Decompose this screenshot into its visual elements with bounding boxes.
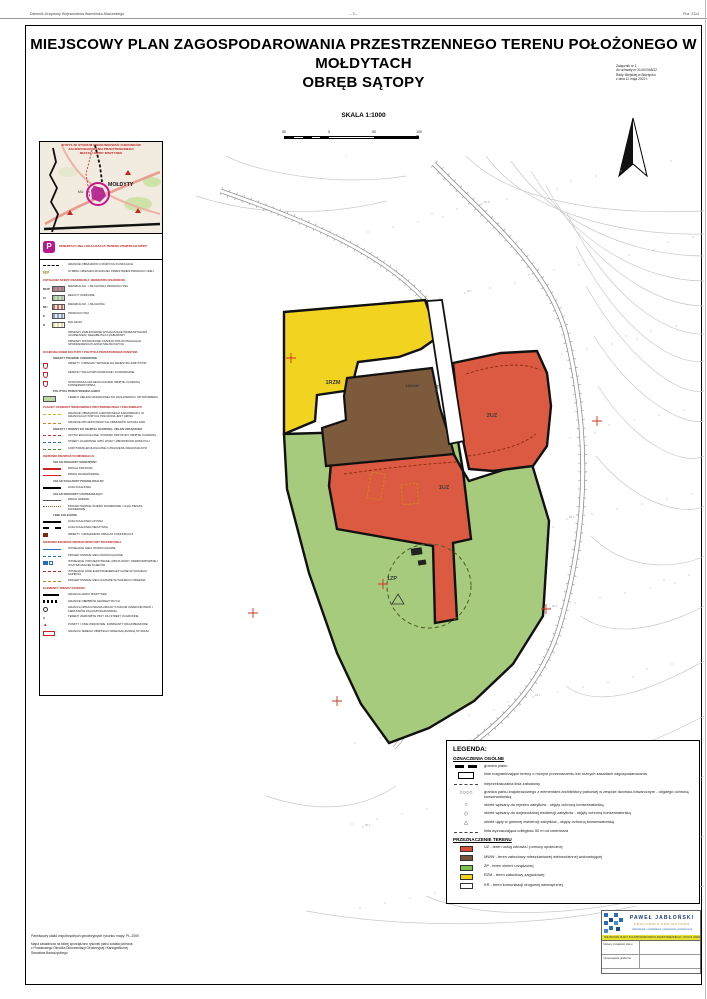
legend-row: ▲PUNKTY I OSIE WIDOKOWE, DOMINANTY KRAJO… <box>43 623 159 628</box>
legend-row: DROGA KRAJOWA <box>43 467 159 471</box>
geodetic-cross <box>332 696 342 706</box>
legend-row: ZIRELIKTY PARKOWE <box>43 294 159 301</box>
legend-general-label: obiekt ujęty w gminnej ewidencji zabytkó… <box>484 820 614 825</box>
legend-dest-swatch <box>453 855 479 862</box>
legend-symbol: MU <box>43 303 65 310</box>
legend-row: GRANICE OBSZARÓW O RÓŻNYCH FUNKCJACH <box>43 263 159 267</box>
legend-row: OBIEKTY I OBSZARY WPISANE DO REJESTRU ZA… <box>43 362 159 369</box>
legend-symbol <box>43 381 65 388</box>
inset-place-label: MOŁDYTY <box>108 182 133 188</box>
legend-row-label: PUNKTY I OSIE WIDOKOWE, DOMINANTY KRAJOB… <box>68 623 148 626</box>
zone-label-2uz: 2UZ <box>487 413 498 419</box>
legend-subsection-header: OBIEKTY I TERENY DO OBJĘCIA OCHRONĄ: ZIE… <box>53 428 159 431</box>
legend-symbol <box>43 340 65 344</box>
legend-general-symbol <box>453 764 479 769</box>
legend-general-row: △obiekt ujęty w gminnej ewidencji zabytk… <box>453 820 693 826</box>
legend-symbol: MU/P <box>43 285 65 292</box>
title-line-2: OBRĘB SĄTOPY <box>26 74 701 93</box>
legend-row: GRANICE OBRĘBÓW GEODEZYJNYCH <box>43 600 159 604</box>
legend-row-label: KORYTARZE EKOLOGICZNE O ZNACZENIU REGION… <box>68 447 147 450</box>
scale-bar-segments <box>284 136 419 139</box>
designer-contact: urbanistyka • architektura • planowanie … <box>626 928 698 931</box>
designer-name: PAWEŁ JABŁOŃSKI <box>626 915 698 921</box>
legend-dest-title: PRZEZNACZENIE TERENU <box>453 837 693 842</box>
legend-row-label: DROGI GMINNE <box>68 498 89 501</box>
legend-general-row: ○○○○granica parku krajobrazowego z eleme… <box>453 790 693 800</box>
legend-row-label: GRANICE OBRĘBÓW GEODEZYJNYCH <box>68 600 120 603</box>
journal-name: Dziennik Urzędowy Województwa Warmińsko-… <box>30 12 124 16</box>
legend-symbol <box>43 331 65 335</box>
legend-dest-row: KR - teren komunikacji drogowej wewnętrz… <box>453 883 693 890</box>
legend-row: ISTNIEJĄCE LINIE ELEKTROENERGETYCZNE WYS… <box>43 570 159 577</box>
legend-symbol: ⌀ <box>43 615 65 620</box>
legend-row-label: PROJEKTOWANE SIECI WODOCIĄGOWE <box>68 554 123 557</box>
legend-general-row: linia wyznaczająca odległość 50 m od cme… <box>453 829 693 834</box>
legend-symbol <box>43 533 65 538</box>
legend-symbol <box>43 526 65 530</box>
legend-row: DROGI WOJEWÓDZKIE <box>43 473 159 477</box>
svg-text:97.7: 97.7 <box>467 289 473 293</box>
legend-dest-row: RZM - teren zabudowy zagrodowej <box>453 873 693 880</box>
legend-general-label: linie rozgraniczające tereny o różnym pr… <box>484 772 647 777</box>
legend-general-row: ○obiekt wpisany do rejestru zabytków - o… <box>453 803 693 809</box>
legend-symbol <box>43 467 65 471</box>
legend-dest-label: KR - teren komunikacji drogowej wewnętrz… <box>484 883 563 888</box>
legend-row-label: ISTNIEJĄCE I PROJEKTOWANE UJĘCIA WODY, P… <box>68 560 159 567</box>
legend-general-row: nieprzekraczalna linia zabudowy <box>453 782 693 787</box>
legend-row: STANOWISKA ARCHEOLOGICZNE OBJĘTE OCHRONĄ… <box>43 381 159 388</box>
base-map-note: Mapa zasadnicza na której sporządzono ry… <box>31 942 271 955</box>
geodetic-cross <box>248 608 258 618</box>
legend-section-header: ELEMENTY ZMIANY STUDIUM <box>43 587 159 590</box>
legend-row: OBSZARY ZABUDOWANE WYMAGAJĄCE PRZEKSZTAŁ… <box>43 331 159 338</box>
legend-dest-row: UZ - teren usług zdrowia i pomocy społec… <box>453 845 693 852</box>
legend-subsection-header: UKŁAD DROGOWY UZUPEŁNIAJĄCY <box>53 493 159 496</box>
legend-row: UŻYTKI EKOLOGICZNE I POMNIKI PRZYRODY OB… <box>43 434 159 438</box>
legend-row: PROJEKTOWANE ŚCIEŻKI ROWEROWE I CIĄGI PI… <box>43 505 159 512</box>
svg-text:95.1: 95.1 <box>365 823 371 827</box>
legend-subsection-header: LINIE KOLEJOWE <box>53 514 159 517</box>
legend-symbol <box>43 498 65 502</box>
legend-dest-swatch <box>453 873 479 880</box>
geodetic-cross <box>592 416 602 426</box>
legend-symbol <box>43 560 65 565</box>
legend-row-label: LINIA KOLEJOWA CZYNNA <box>68 520 103 523</box>
legend-general-label: linia wyznaczająca odległość 50 m od cme… <box>484 829 568 834</box>
legend-row: GRANICE OBSZARÓW CHRONIONEGO KRAJOBRAZU,… <box>43 412 159 419</box>
legend-symbol <box>43 263 65 267</box>
legend-general-row: ◇obiekt wpisany do wojewódzkiej ewidencj… <box>453 811 693 817</box>
coordinate-system-note: Państwowy układ współrzędnych geodezyjny… <box>31 934 271 938</box>
legend-row-label: GRANICE PROJEKTOWANYCH OBSZARÓW NATURA 2… <box>68 421 145 424</box>
legend-symbol: ZI <box>43 294 65 301</box>
legend-subsection-header: UKŁAD DROGOWY NADRZĘDNY <box>53 461 159 464</box>
svg-text:93.1: 93.1 <box>535 693 541 697</box>
legend-subsection-header: OBIEKTY PRAWNIE CHRONIONE <box>53 357 159 360</box>
legend-row-label: GRANICE OBSZARÓW O RÓŻNYCH FUNKCJACH <box>68 263 133 266</box>
svg-text:99.3: 99.3 <box>569 515 575 519</box>
legend-dest-row: MWW - teren zabudowy mieszkaniowej wielo… <box>453 855 693 862</box>
stamp-row-label: Opracowanie graficzne <box>602 955 640 968</box>
legend-row-label: DROGI WOJEWÓDZKIE <box>68 473 99 476</box>
plan-sheet-page: Dziennik Urzędowy Województwa Warmińsko-… <box>0 0 707 999</box>
legend-row: DROGI GMINNE <box>43 498 159 502</box>
legend-general-symbol: ○○○○ <box>453 790 479 796</box>
legend-general-symbol <box>453 772 479 780</box>
legend-general-symbol <box>453 829 479 834</box>
page-number: – 3 – <box>350 12 358 16</box>
legend-row: ISTNIEJĄCE SIECI WODOCIĄGOWE <box>43 547 159 551</box>
resolution-annotation: Załącznik nr 1do uchwały nr XLVIII/348/2… <box>616 64 696 82</box>
zone-label-1mww: 1MWW <box>405 383 418 388</box>
legend-symbol <box>43 473 65 477</box>
legend-row-label: ISTNIEJĄCE SIECI WODOCIĄGOWE <box>68 547 116 550</box>
legend-row-label: ROLNICZA <box>68 321 82 324</box>
legend-symbol <box>43 396 65 403</box>
legend-symbol <box>43 606 65 612</box>
page-title: MIEJSCOWY PLAN ZAGOSPODAROWANIA PRZESTRZ… <box>26 36 701 92</box>
legend-row-label: STREFY OCHRONNE UJĘĆ WODY I ZBIORNIKÓW W… <box>68 440 149 443</box>
legend-symbol <box>43 600 65 604</box>
legend-row: GRANICA GMINY BISZTYNEK <box>43 593 159 597</box>
zone-polygons <box>284 300 551 743</box>
designer-stamp: PAWEŁ JABŁOŃSKI PRACOWNIA PROJEKTOWA urb… <box>601 910 701 974</box>
legend-subsection-header: UKŁAD KOLEJOWY PONADLOKALNY <box>53 480 159 483</box>
scale-label: SKALA 1:1000 <box>26 112 701 119</box>
inset-map-title: WYRYS ZE STUDIUM UWARUNKOWAŃ I KIERUNKÓW… <box>40 144 162 156</box>
legend-row: OBIEKTY I URZĄDZENIA OBSŁUGI KOMUNIKACJI <box>43 533 159 538</box>
legend-symbol <box>43 579 65 583</box>
legend-row-label: OBIEKTY I URZĄDZENIA OBSŁUGI KOMUNIKACJI <box>68 533 133 536</box>
stamp-table: Główny projektant planuOpracowanie grafi… <box>602 940 700 969</box>
scale-tick-labels: 50050100 m <box>284 130 419 135</box>
legend-row: GRANICA OPRACOWANIA ZMIANY STUDIUM UWARU… <box>43 606 159 613</box>
legend-dest-swatch <box>453 845 479 852</box>
legend-section-header: ZASADY OCHRONY ŚRODOWISKA PRZYRODNICZEGO… <box>43 406 159 409</box>
legend-general-rows: granica planulinie rozgraniczające teren… <box>453 764 693 834</box>
study-inset-map: WYRYS ZE STUDIUM UWARUNKOWAŃ I KIERUNKÓW… <box>40 142 162 234</box>
legend-row: PROJEKTOWANE SIECI WODOCIĄGOWE <box>43 554 159 558</box>
legend-row-label: LINIA KOLEJOWA NIECZYNNA <box>68 526 108 529</box>
legend-row: PPRODUKCYJNA <box>43 312 159 319</box>
legend-symbol <box>43 554 65 558</box>
annotation-line: z dnia 11 maja 2022 r. <box>616 77 696 81</box>
inset-place-label-2: MU <box>78 190 83 194</box>
legend-row-label: ISTNIEJĄCE LINIE ELEKTROENERGETYCZNE WYS… <box>68 570 159 577</box>
legend-row-label: STANOWISKA ARCHEOLOGICZNE OBJĘTE OCHRONĄ… <box>68 381 159 388</box>
legend-row: GRANICE PROJEKTOWANYCH OBSZARÓW NATURA 2… <box>43 421 159 425</box>
legend-row-label: TERENY ZAMKNIĘTE PKP I ICH STREFY OCHRON… <box>68 615 138 618</box>
legend-row: MUMIESZKALNO - USŁUGOWA <box>43 303 159 310</box>
legend-dest-label: ZP - teren zieleni urządzonej <box>484 864 533 869</box>
base-map-note-line: Starostwa Bartoszyckiego <box>31 951 271 955</box>
legend-dest-label: RZM - teren zabudowy zagrodowej <box>484 873 544 878</box>
legend-symbol <box>43 570 65 574</box>
legend-symbol <box>43 412 65 416</box>
scale-tick: 0 <box>328 130 330 134</box>
legend-general-label: granica planu <box>484 764 507 769</box>
zone-2uz <box>453 351 551 471</box>
legend-symbol: R <box>43 321 65 328</box>
stamp-logo-icon <box>604 913 624 933</box>
header-rule <box>0 18 707 19</box>
legend-row: GRANICA TERENU OBJĘTEGO NINIEJSZĄ ZMIANĄ… <box>43 630 159 636</box>
legend-row-label: PRODUKCYJNA <box>68 312 89 315</box>
legend-row: RPSYMBOL OBSZARU ROLNICZEJ PRZESTRZENI P… <box>43 270 159 276</box>
legend-section-header: KIERUNKI ROZWOJU KOMUNIKACJI <box>43 455 159 458</box>
legend-row: LINIA KOLEJOWA CZYNNA <box>43 520 159 524</box>
legend-row-label: DROGA KRAJOWA <box>68 467 93 470</box>
map-sheet-frame: MIEJSCOWY PLAN ZAGOSPODAROWANIA PRZESTRZ… <box>25 25 702 985</box>
legend-general-title: OZNACZENIA OGÓLNE <box>453 756 693 761</box>
legend-row: LINIA KOLEJOWA <box>43 486 159 490</box>
study-legend-rows: GRANICE OBSZARÓW O RÓŻNYCH FUNKCJACHRPSY… <box>40 260 162 636</box>
legend-row-label: OBSZARY ZABUDOWANE WYMAGAJĄCE PRZEKSZTAŁ… <box>68 331 159 338</box>
legend-general-label: obiekt wpisany do wojewódzkiej ewidencji… <box>484 811 631 816</box>
legend-general-label: nieprzekraczalna linia zabudowy <box>484 782 540 787</box>
orientation-label: ORIENTACYJNA LOKALIZACJA TERENU OBJĘTEGO… <box>59 244 147 248</box>
legend-row: KORYTARZE EKOLOGICZNE O ZNACZENIU REGION… <box>43 447 159 451</box>
legend-section-header: USTALENIA SFERY OSADNICZEJ: JEDNOSTKI OS… <box>43 279 159 282</box>
legend-row-label: ZESPOŁY PAŁACOWO-PARKOWE I FOLWARCZNE <box>68 371 134 374</box>
legend-general-label: granica parku krajobrazowego z elementam… <box>484 790 693 800</box>
legend-symbol <box>43 362 65 369</box>
scale-tick: 50 <box>372 130 376 134</box>
legend-general-symbol: △ <box>453 820 479 826</box>
mpzp-location-icon: P <box>43 241 55 253</box>
legend-row-label: TERENY ZIELENI URZĄDZONEJ DO ZACHOWANIA … <box>68 396 158 399</box>
legend-row-label: PROJEKTOWANE ŚCIEŻKI ROWEROWE I CIĄGI PI… <box>68 505 159 512</box>
zone-label-1kr: 1KR <box>433 384 440 393</box>
legend-title: LEGENDA: <box>453 746 693 753</box>
legend-row-label: LINIA KOLEJOWA <box>68 486 91 489</box>
footnotes: Państwowy układ współrzędnych geodezyjny… <box>31 934 271 955</box>
legend-general-symbol <box>453 782 479 787</box>
legend-symbol: ▲ <box>43 623 65 628</box>
legend-symbol <box>43 520 65 524</box>
legend-row: OBSZARY ROZWOJOWE OSADNICTWA WYMAGAJĄCE … <box>43 340 159 347</box>
legend-general-row: granica planu <box>453 764 693 769</box>
legend-dest-label: MWW - teren zabudowy mieszkaniowej wielo… <box>484 855 602 860</box>
legend-row-label: UŻYTKI EKOLOGICZNE I POMNIKI PRZYRODY OB… <box>68 434 156 437</box>
legend-row-label: GRANICA OPRACOWANIA ZMIANY STUDIUM UWARU… <box>68 606 159 613</box>
stamp-table-row: Opracowanie graficzne <box>602 955 700 969</box>
inset-map-graphic <box>40 142 162 234</box>
legend-row: RROLNICZA <box>43 321 159 328</box>
legend-row-label: MIESZKALNO - USŁUGOWA <box>68 303 105 306</box>
scale-bar: 50050100 m <box>284 130 419 142</box>
legend-row-label: OBIEKTY I OBSZARY WPISANE DO REJESTRU ZA… <box>68 362 146 365</box>
orientation-row: P ORIENTACYJNA LOKALIZACJA TERENU OBJĘTE… <box>40 234 162 260</box>
legend-row-label: GRANICA TERENU OBJĘTEGO NINIEJSZĄ ZMIANĄ… <box>68 630 149 633</box>
designer-subtitle: PRACOWNIA PROJEKTOWA <box>626 922 698 926</box>
zone-label-1rzm: 1RZM <box>326 380 341 386</box>
legend-general-symbol: ◇ <box>453 811 479 817</box>
stamp-row-label: Główny projektant planu <box>602 941 640 954</box>
legend-row: TERENY ZIELENI URZĄDZONEJ DO ZACHOWANIA … <box>43 396 159 403</box>
legend-row: PROJEKTOWANE SIECI GAZOWE WYSOKIEGO CIŚN… <box>43 579 159 583</box>
legend-row: ISTNIEJĄCE I PROJEKTOWANE UJĘCIA WODY, P… <box>43 560 159 567</box>
legend-symbol <box>43 447 65 451</box>
svg-text:92.8: 92.8 <box>484 200 490 204</box>
legend-row-label: RELIKTY PARKOWE <box>68 294 94 297</box>
legend-row-label: MIESZKALNO - USŁUGOWA I PRODUKCYJNA <box>68 285 128 288</box>
legend-subsection-header: POLITYKA PRZESTRZENNA GMINY <box>53 390 159 393</box>
legend-general-symbol: ○ <box>453 803 479 809</box>
legend-symbol <box>43 630 65 636</box>
study-legend-panel: WYRYS ZE STUDIUM UWARUNKOWAŃ I KIERUNKÓW… <box>39 141 163 696</box>
legend-symbol <box>43 371 65 378</box>
legend-row: ZESPOŁY PAŁACOWO-PARKOWE I FOLWARCZNE <box>43 371 159 378</box>
legend-row: ⌀TERENY ZAMKNIĘTE PKP I ICH STREFY OCHRO… <box>43 615 159 620</box>
legend-symbol <box>43 505 65 509</box>
legend-symbol <box>43 434 65 438</box>
legend-row: LINIA KOLEJOWA NIECZYNNA <box>43 526 159 530</box>
legend-symbol: RP <box>43 270 65 276</box>
legend-symbol <box>43 421 65 425</box>
page-edge-line <box>705 0 706 999</box>
legend-symbol <box>43 593 65 597</box>
scale-tick: 50 <box>282 130 286 134</box>
stamp-table-row: Główny projektant planu <box>602 941 700 955</box>
zone-label-1uz: 1UZ <box>439 485 450 491</box>
legend-symbol <box>43 486 65 490</box>
legend-dest-label: UZ - teren usług zdrowia i pomocy społec… <box>484 845 563 850</box>
legend-dest-rows: UZ - teren usług zdrowia i pomocy społec… <box>453 845 693 889</box>
legend-symbol <box>43 440 65 444</box>
legend-symbol: P <box>43 312 65 319</box>
legend-dest-swatch <box>453 864 479 871</box>
svg-text:96.2: 96.2 <box>552 604 558 608</box>
legend-section-header: OCHRONA DÓBR KULTURY I POLITYKA PRZESTRZ… <box>43 351 159 354</box>
legend-row: STREFY OCHRONNE UJĘĆ WODY I ZBIORNIKÓW W… <box>43 440 159 444</box>
legend-row: MU/PMIESZKALNO - USŁUGOWA I PRODUKCYJNA <box>43 285 159 292</box>
legend-row-label: SYMBOL OBSZARU ROLNICZEJ PRZESTRZENI PRO… <box>68 270 154 273</box>
legend-dest-swatch <box>453 883 479 890</box>
legend-symbol <box>43 547 65 551</box>
legend-row-label: OBSZARY ROZWOJOWE OSADNICTWA WYMAGAJĄCE … <box>68 340 159 347</box>
legend-section-header: KIERUNKI ROZWOJU INFRASTRUKTURY TECHNICZ… <box>43 541 159 544</box>
legend-dest-row: ZP - teren zieleni urządzonej <box>453 864 693 871</box>
legend-general-row: linie rozgraniczające tereny o różnym pr… <box>453 772 693 780</box>
legend-row-label: PROJEKTOWANE SIECI GAZOWE WYSOKIEGO CIŚN… <box>68 579 146 582</box>
legend-box: LEGENDA: OZNACZENIA OGÓLNE granica planu… <box>446 740 700 904</box>
title-line-1: MIEJSCOWY PLAN ZAGOSPODAROWANIA PRZESTRZ… <box>26 36 701 74</box>
zone-label-1zp: 1ZP <box>387 576 397 582</box>
inset-title-line: MIASTA I GMINY BISZTYNEK <box>40 152 162 156</box>
legend-row-label: GRANICA GMINY BISZTYNEK <box>68 593 107 596</box>
position-number: Poz. 2114 <box>683 12 699 16</box>
legend-row-label: GRANICE OBSZARÓW CHRONIONEGO KRAJOBRAZU,… <box>68 412 159 419</box>
legend-general-label: obiekt wpisany do rejestru zabytków - ob… <box>484 803 604 808</box>
